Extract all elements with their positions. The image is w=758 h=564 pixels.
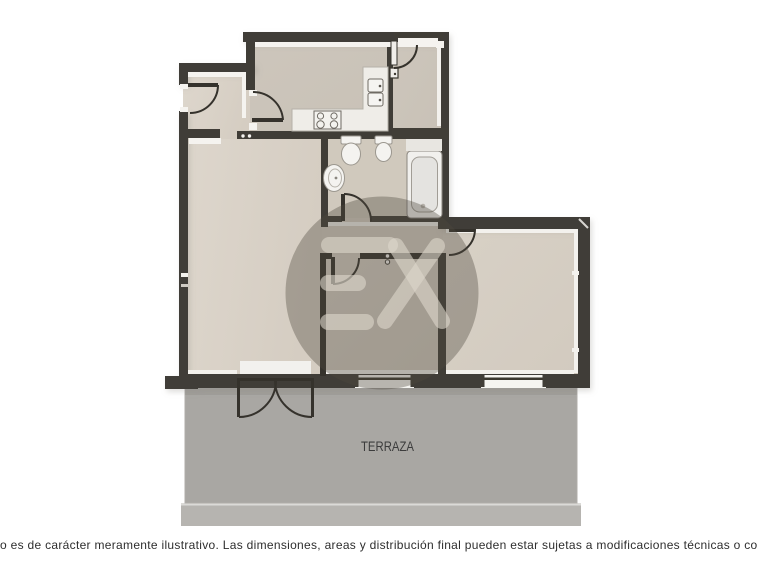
svg-text:TERRAZA: TERRAZA [361,439,414,454]
svg-text:o es de carácter meramente ilu: o es de carácter meramente ilustrativo. … [0,538,758,552]
